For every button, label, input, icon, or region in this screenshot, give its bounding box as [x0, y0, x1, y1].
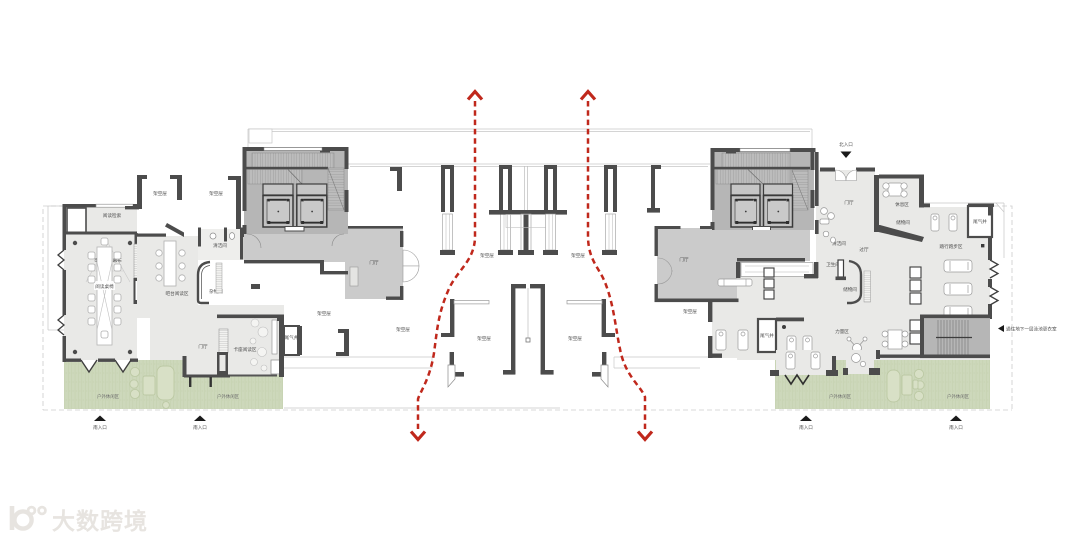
svg-text:户外休闲区: 户外休闲区 [97, 393, 120, 400]
svg-text:架空层: 架空层 [571, 252, 585, 259]
svg-text:阅读桌椅: 阅读桌椅 [95, 283, 114, 290]
svg-text:尾气井: 尾气井 [285, 334, 299, 341]
svg-text:力量区: 力量区 [835, 328, 849, 335]
svg-text:门厅: 门厅 [844, 199, 854, 206]
svg-text:大数跨境: 大数跨境 [52, 508, 148, 534]
svg-text:架空层: 架空层 [480, 252, 494, 259]
svg-text:架空层: 架空层 [683, 308, 697, 315]
svg-text:户外休闲区: 户外休闲区 [829, 393, 852, 400]
svg-text:尾气井: 尾气井 [760, 332, 774, 339]
svg-text:过厅: 过厅 [859, 246, 869, 253]
svg-text:户外休闲区: 户外休闲区 [947, 393, 970, 400]
svg-text:南入口: 南入口 [949, 424, 963, 431]
svg-text:踏行跑步区: 踏行跑步区 [940, 243, 963, 250]
svg-text:南入口: 南入口 [193, 424, 207, 431]
svg-text:架空层: 架空层 [396, 326, 410, 333]
svg-text:架空层: 架空层 [209, 190, 223, 197]
svg-text:南入口: 南入口 [799, 424, 813, 431]
svg-text:阅读检索: 阅读检索 [103, 212, 122, 219]
svg-text:储物间: 储物间 [843, 286, 857, 293]
svg-text:架空层: 架空层 [317, 310, 331, 317]
svg-text:北入口: 北入口 [839, 141, 853, 148]
svg-text:休息区: 休息区 [895, 201, 909, 208]
svg-text:吧台阅读区: 吧台阅读区 [166, 290, 189, 297]
svg-text:南入口: 南入口 [93, 424, 107, 431]
svg-text:门厅: 门厅 [679, 256, 689, 263]
svg-text:门厅: 门厅 [369, 259, 379, 266]
svg-text:通往地下一层泳池更衣室: 通往地下一层泳池更衣室 [1006, 326, 1057, 333]
svg-text:户外休闲区: 户外休闲区 [217, 393, 240, 400]
svg-text:储物间: 储物间 [896, 219, 910, 226]
svg-text:尾气井: 尾气井 [973, 218, 987, 225]
svg-text:清洁间: 清洁间 [213, 242, 227, 249]
svg-text:架空层: 架空层 [153, 190, 167, 197]
svg-text:架空层: 架空层 [568, 335, 582, 342]
svg-text:卡座阅读区: 卡座阅读区 [234, 346, 257, 353]
svg-text:架空层: 架空层 [477, 335, 491, 342]
svg-text:门厅: 门厅 [198, 343, 208, 350]
